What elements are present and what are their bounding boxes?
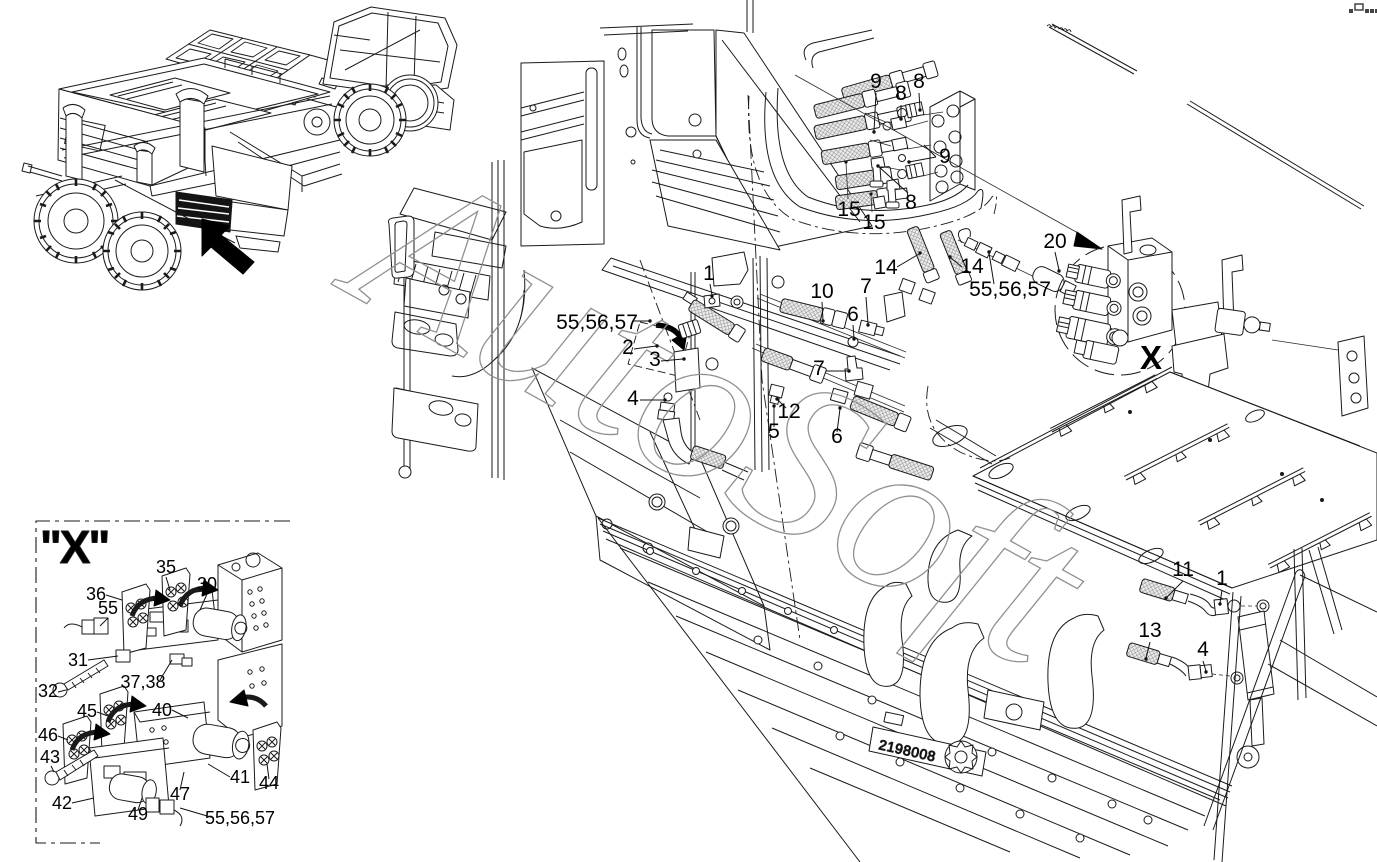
svg-text:37,38: 37,38 — [120, 672, 165, 692]
svg-text:4: 4 — [1197, 638, 1209, 661]
svg-text:14: 14 — [874, 256, 898, 279]
svg-text:47: 47 — [170, 784, 190, 804]
svg-text:2: 2 — [622, 336, 634, 359]
svg-text:42: 42 — [52, 793, 72, 813]
svg-text:5: 5 — [768, 420, 780, 443]
svg-text:12: 12 — [777, 400, 800, 423]
svg-text:32: 32 — [38, 681, 58, 701]
svg-text:35: 35 — [156, 557, 176, 577]
svg-text:40: 40 — [152, 700, 172, 720]
svg-text:1: 1 — [1216, 567, 1228, 590]
svg-text:8: 8 — [905, 191, 917, 214]
svg-text:15: 15 — [837, 198, 860, 221]
svg-text:1: 1 — [703, 262, 715, 285]
svg-text:X: X — [1140, 339, 1162, 376]
svg-text:55: 55 — [98, 598, 118, 618]
svg-text:31: 31 — [68, 650, 88, 670]
svg-text:45: 45 — [77, 701, 97, 721]
svg-text:8: 8 — [913, 70, 925, 93]
svg-text:6: 6 — [847, 303, 859, 326]
svg-text:8: 8 — [895, 82, 907, 105]
svg-text:4: 4 — [627, 387, 639, 410]
svg-text:7: 7 — [813, 357, 825, 380]
svg-text:55,56,57: 55,56,57 — [969, 278, 1051, 301]
svg-text:9: 9 — [870, 70, 882, 93]
svg-text:7: 7 — [860, 275, 872, 298]
svg-text:20: 20 — [1043, 230, 1066, 253]
svg-text:9: 9 — [939, 145, 951, 168]
svg-text:6: 6 — [831, 425, 843, 448]
svg-text:55,56,57: 55,56,57 — [205, 808, 275, 828]
svg-text:15: 15 — [862, 211, 885, 234]
svg-text:3: 3 — [649, 348, 661, 371]
svg-text:10: 10 — [810, 280, 833, 303]
svg-text:30: 30 — [197, 574, 217, 594]
svg-text:14: 14 — [960, 255, 984, 278]
svg-text:46: 46 — [38, 725, 58, 745]
svg-text:11: 11 — [1172, 558, 1194, 581]
svg-text:49: 49 — [128, 804, 148, 824]
svg-text:55,56,57: 55,56,57 — [556, 311, 638, 334]
svg-text:41: 41 — [230, 767, 250, 787]
svg-text:13: 13 — [1138, 619, 1161, 642]
svg-text:43: 43 — [40, 747, 60, 767]
svg-text:"X": "X" — [40, 521, 108, 573]
